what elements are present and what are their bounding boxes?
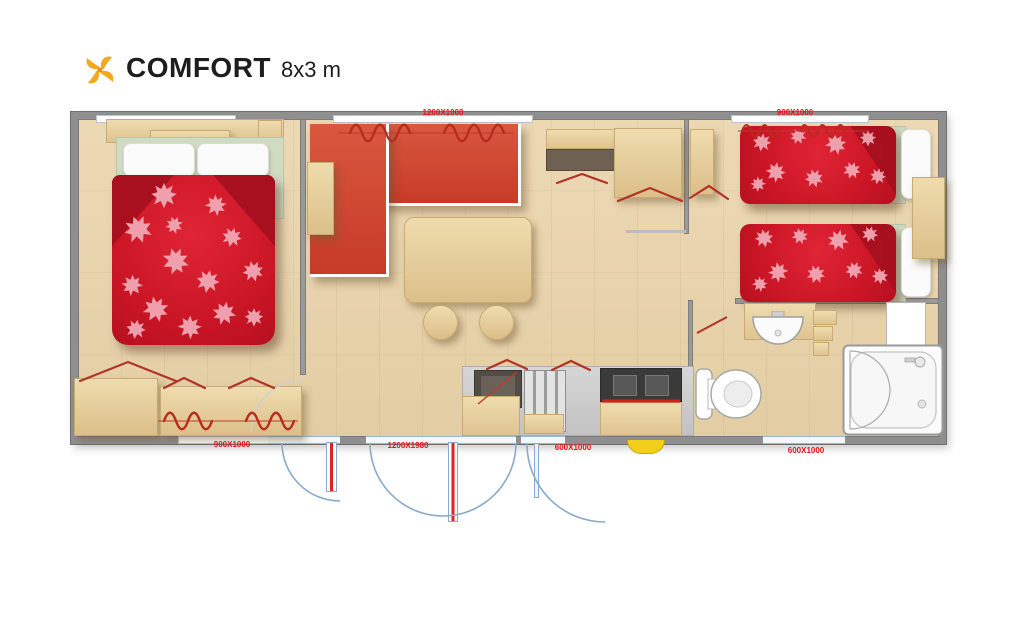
interior-door-open xyxy=(626,230,686,233)
stool xyxy=(423,305,458,340)
model-name: COMFORT xyxy=(126,52,271,84)
twin-bed-1-duvet xyxy=(740,126,896,204)
plan-title: COMFORT 8x3 m xyxy=(126,52,341,84)
washbasin-icon xyxy=(749,311,807,359)
wall-kitchen-partition xyxy=(684,119,689,234)
shelf-step xyxy=(813,342,829,356)
side-table xyxy=(307,162,334,235)
door-panel-master xyxy=(326,442,337,492)
door-panel-main xyxy=(448,442,458,522)
bedroom-bench xyxy=(160,386,302,436)
pinwheel-icon xyxy=(84,54,116,86)
maple-leaf-pattern xyxy=(740,224,896,302)
door-panel-kitchen xyxy=(534,443,539,498)
double-bed-duvet xyxy=(112,175,275,345)
shelf-step xyxy=(813,326,833,341)
floor-plan-page: COMFORT 8x3 m xyxy=(0,0,1024,640)
dimension-label-bottom-center: 1200X1980 xyxy=(388,442,429,450)
shelf-step xyxy=(813,310,837,325)
pillow xyxy=(123,143,195,177)
stool xyxy=(479,305,514,340)
kitchen-shelf-dark xyxy=(546,149,616,171)
kitchen-cabinet-small xyxy=(524,414,564,434)
bedroom-wardrobe xyxy=(690,129,714,195)
kitchen-cabinet xyxy=(462,396,520,436)
dimension-label-top-center: 1200X1000 xyxy=(423,109,464,117)
maple-leaf-pattern xyxy=(740,126,896,204)
kitchen-shelf xyxy=(546,129,616,149)
dining-table xyxy=(404,217,532,303)
dimension-label-bottom-right: 600X1000 xyxy=(788,447,824,455)
nightstand xyxy=(912,177,945,259)
dimension-label-bottom-kitchen: 600X1000 xyxy=(555,444,591,452)
bedroom-dresser xyxy=(74,378,158,436)
wardrobe xyxy=(614,128,682,198)
toilet-icon xyxy=(694,364,764,424)
cooktop xyxy=(600,368,682,402)
twin-bed-2-duvet xyxy=(740,224,896,302)
bathroom-cabinet xyxy=(886,302,926,347)
window-bath-bottom xyxy=(763,436,845,444)
gas-locker xyxy=(627,440,665,454)
wall-master-partition xyxy=(300,119,306,375)
dimension-label-bottom-left: 900X1000 xyxy=(214,441,250,449)
pillow xyxy=(197,143,269,177)
kitchen-cabinet-under-cooktop xyxy=(600,402,682,436)
dimension-label-top-right: 900X1000 xyxy=(777,109,813,117)
shower-icon xyxy=(842,344,944,436)
model-size: 8x3 m xyxy=(281,57,341,83)
maple-leaf-pattern xyxy=(112,175,275,345)
